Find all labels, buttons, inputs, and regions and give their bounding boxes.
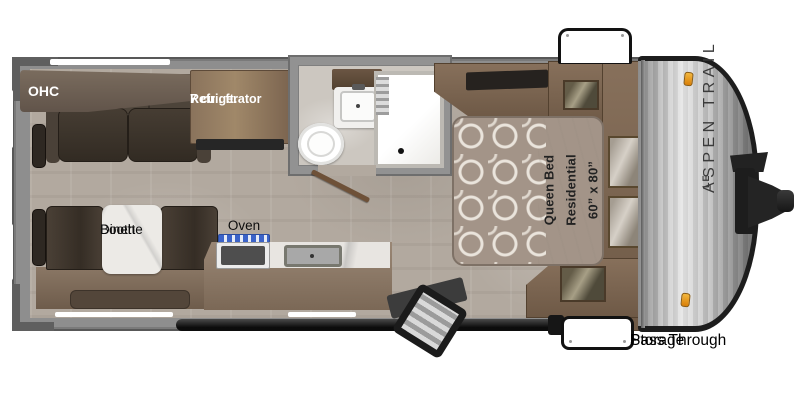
cap-seam [641,60,645,328]
hatch-screw [566,34,569,37]
wall-accent [12,284,20,331]
marker-light-bottom [680,293,690,308]
brand-badge: LE [701,174,711,188]
window-bottom-left [55,312,173,317]
kitchen-sink-drain [310,254,314,258]
rear-window-upper [32,124,46,168]
cabinet-glass-top [563,80,599,110]
rear-window-lower [32,209,46,266]
cabinet-glass-bottom [560,266,606,302]
booth-dinette-table [102,205,162,274]
hatch-screw [621,34,624,37]
window-rear-lower-mark [8,224,13,280]
sofa-cushion-right [128,108,198,162]
bath-faucet [352,84,365,90]
bathroom-door-opening [318,165,376,176]
bed-label-line1: 60” x 80” [586,161,601,219]
pass-through-storage-hatch [561,316,634,350]
queen-bed [452,116,604,266]
ohc-label: OHC [28,83,78,99]
hatch-screw [623,340,626,343]
bed-label-line2: Residential [564,154,579,226]
dinette-base-drawer [70,290,190,309]
window-bottom-mid [288,312,356,317]
wardrobe-mirror-upper [608,136,640,188]
dinette-bench-left [46,206,104,270]
oven-door [221,246,265,265]
wardrobe-mirror-lower [608,196,640,248]
bedspread-pattern [454,118,546,264]
wall-accent [12,57,20,101]
hatch-screw [569,340,572,343]
refrigerator [190,70,290,144]
window-top [50,59,170,65]
oven-label: Oven [218,218,270,233]
toilet-seat [307,131,335,157]
sofa-cushion-left [58,108,128,162]
bed-label-line3: Queen Bed [542,155,557,225]
window-rear-upper-mark [8,90,13,148]
bath-sink-drain [356,104,360,108]
floorplan-canvas: OHC 7 cu . ft. Refrigerator Queen Bed Re… [0,0,800,400]
shower-drain [398,148,404,154]
hitch-coupler [777,190,794,212]
shower-shelf [376,77,389,115]
marker-light-top [683,72,693,87]
awning-rail [176,319,560,331]
refrigerator-vent [196,139,284,150]
tv [466,70,548,91]
